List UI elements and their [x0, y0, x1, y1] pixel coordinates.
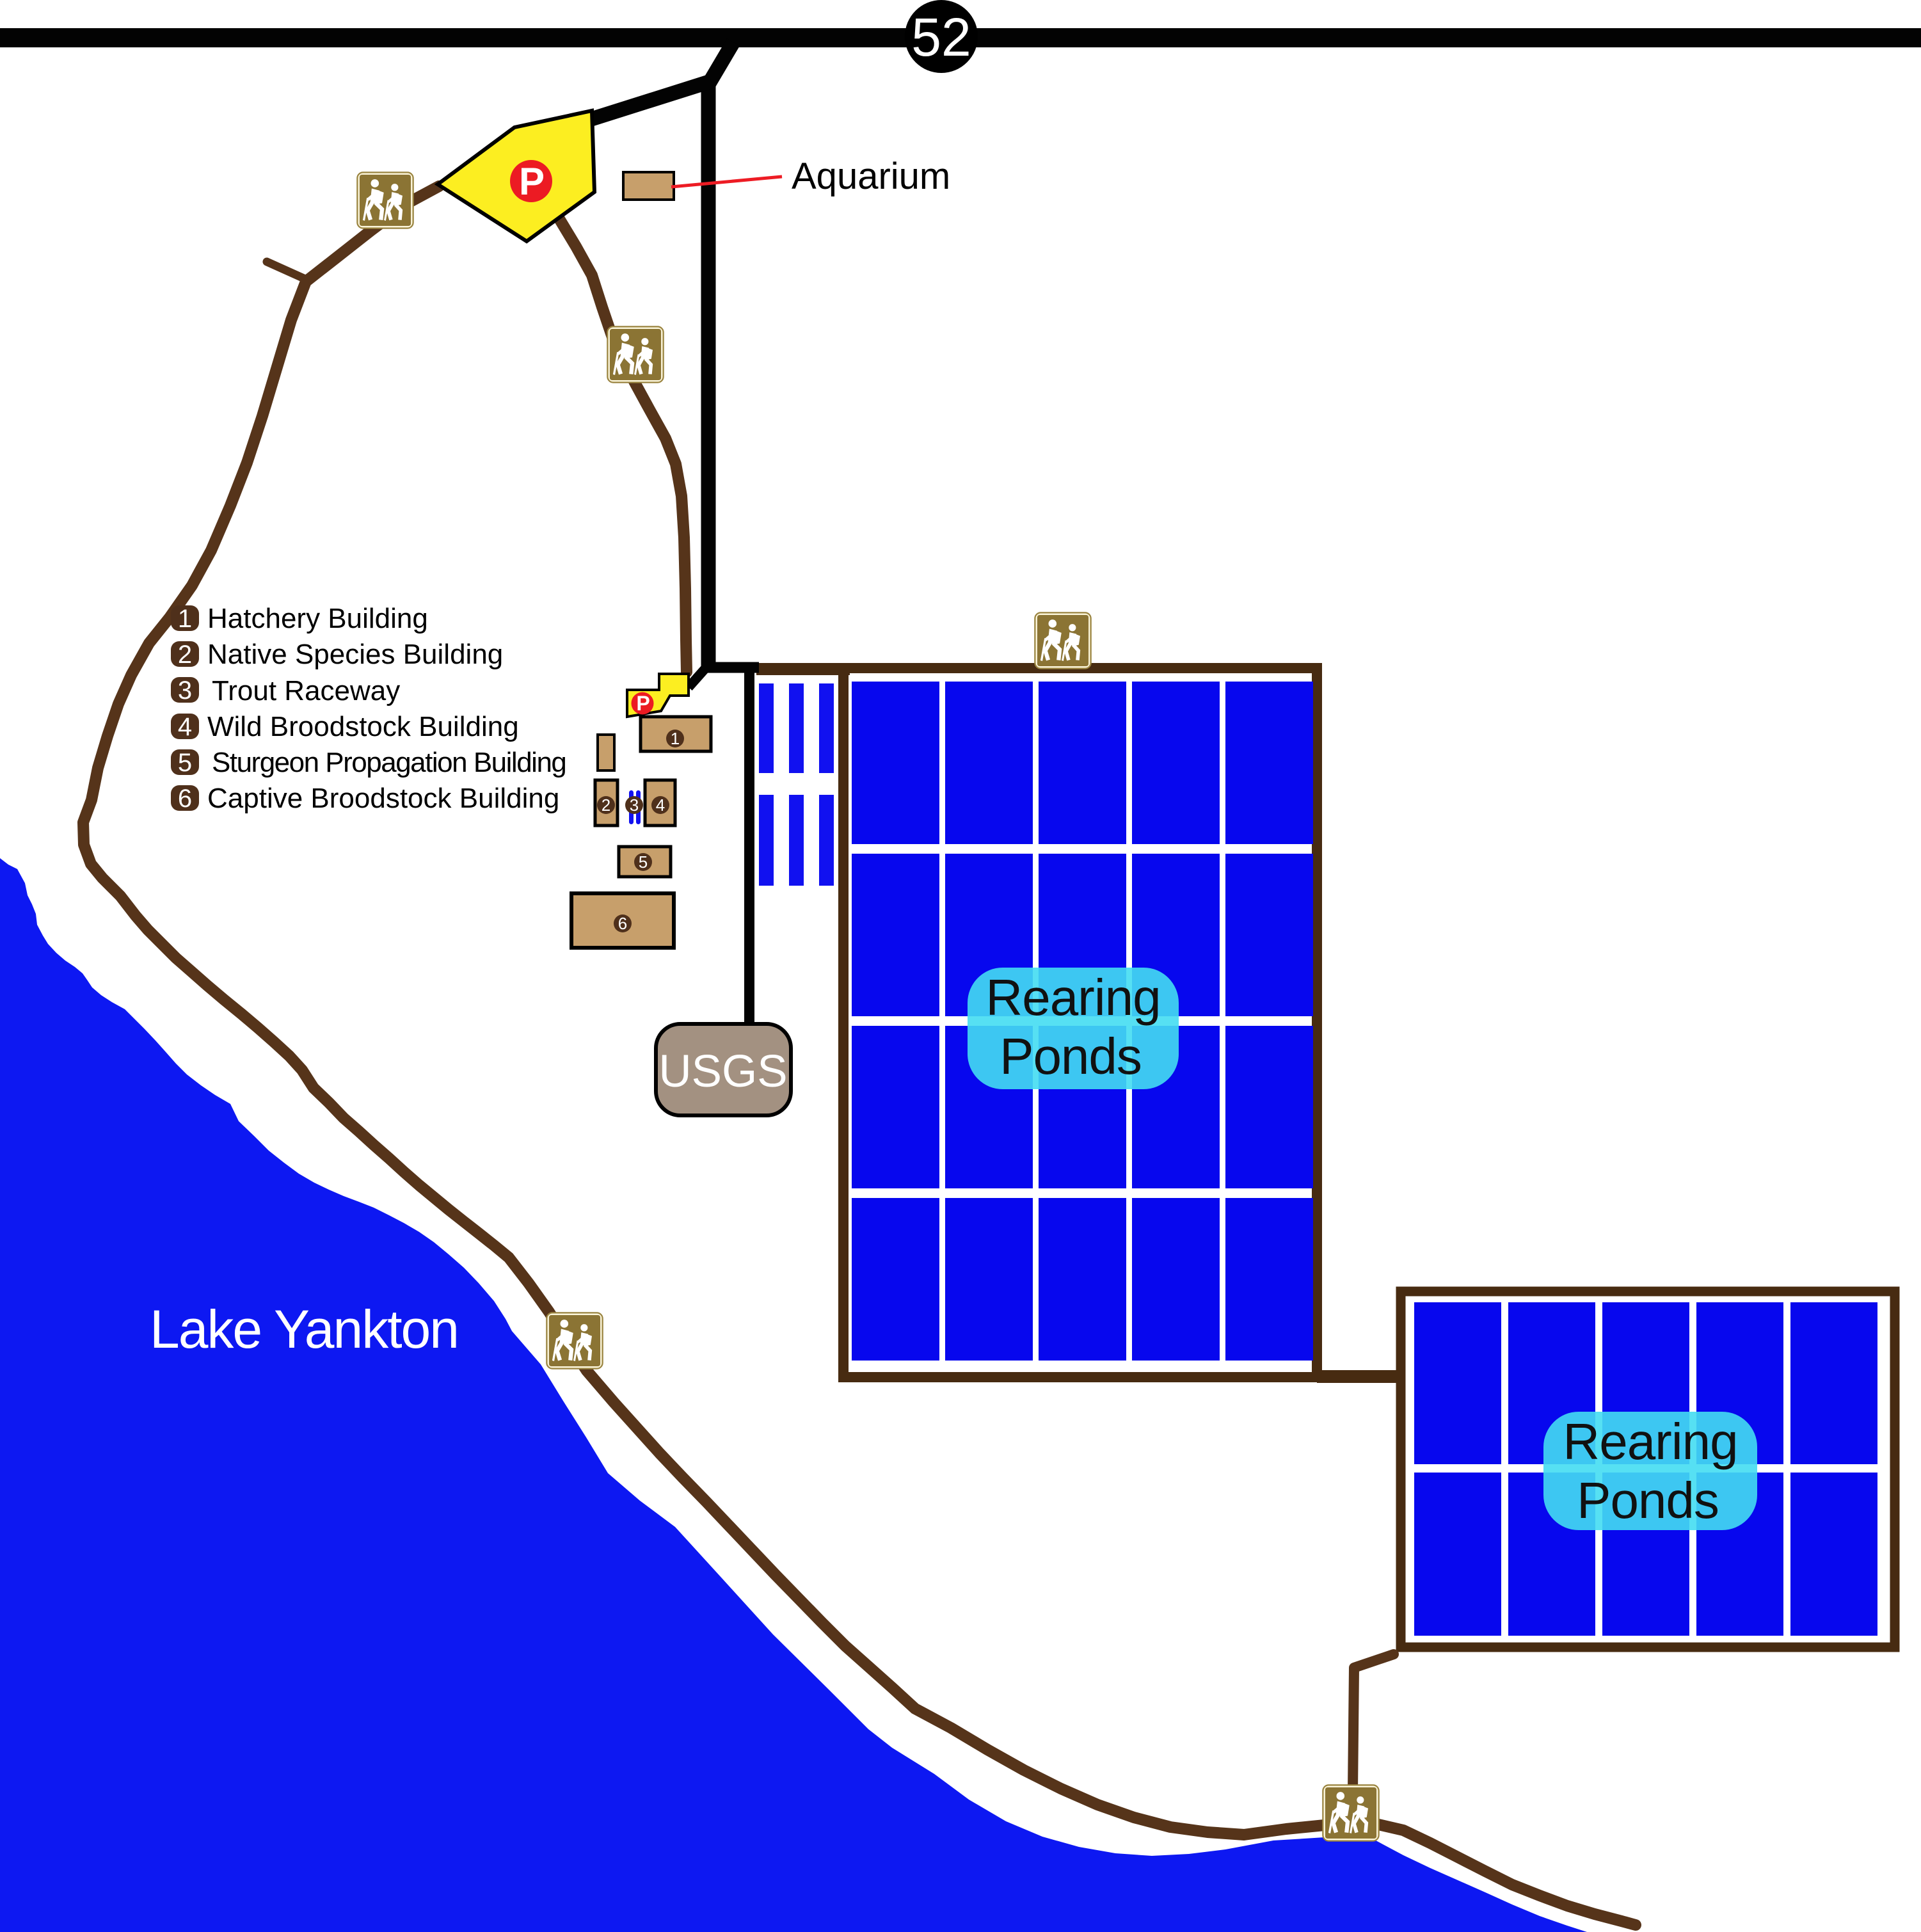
svg-text:6: 6: [178, 785, 192, 813]
svg-text:Lake Yankton: Lake Yankton: [150, 1299, 458, 1359]
svg-text:Wild Broodstock Building: Wild Broodstock Building: [207, 711, 519, 742]
svg-text:2: 2: [602, 795, 610, 815]
svg-text:3: 3: [178, 676, 192, 705]
svg-text:1: 1: [178, 605, 192, 633]
svg-text:Native Species Building: Native Species Building: [207, 639, 503, 670]
svg-text:Captive Broodstock Building: Captive Broodstock Building: [207, 783, 559, 814]
svg-text:Trout Raceway: Trout Raceway: [212, 675, 400, 707]
svg-text:Rearing: Rearing: [1563, 1413, 1737, 1470]
svg-text:Ponds: Ponds: [1000, 1028, 1142, 1085]
svg-text:Aquarium: Aquarium: [792, 156, 950, 197]
svg-text:1: 1: [671, 729, 680, 748]
svg-text:5: 5: [639, 852, 648, 872]
svg-text:6: 6: [618, 914, 627, 933]
svg-text:Sturgeon Propagation Building: Sturgeon Propagation Building: [212, 747, 566, 778]
svg-text:Hatchery Building: Hatchery Building: [207, 603, 428, 634]
svg-text:5: 5: [178, 749, 192, 777]
svg-text:52: 52: [911, 7, 971, 67]
svg-text:3: 3: [630, 795, 639, 815]
svg-text:USGS: USGS: [658, 1046, 787, 1097]
svg-text:2: 2: [178, 641, 192, 669]
svg-text:Ponds: Ponds: [1577, 1472, 1719, 1529]
svg-text:P: P: [636, 692, 650, 715]
svg-text:P: P: [519, 160, 545, 203]
svg-text:4: 4: [656, 795, 665, 815]
svg-text:4: 4: [178, 713, 192, 741]
svg-text:Rearing: Rearing: [985, 969, 1160, 1026]
